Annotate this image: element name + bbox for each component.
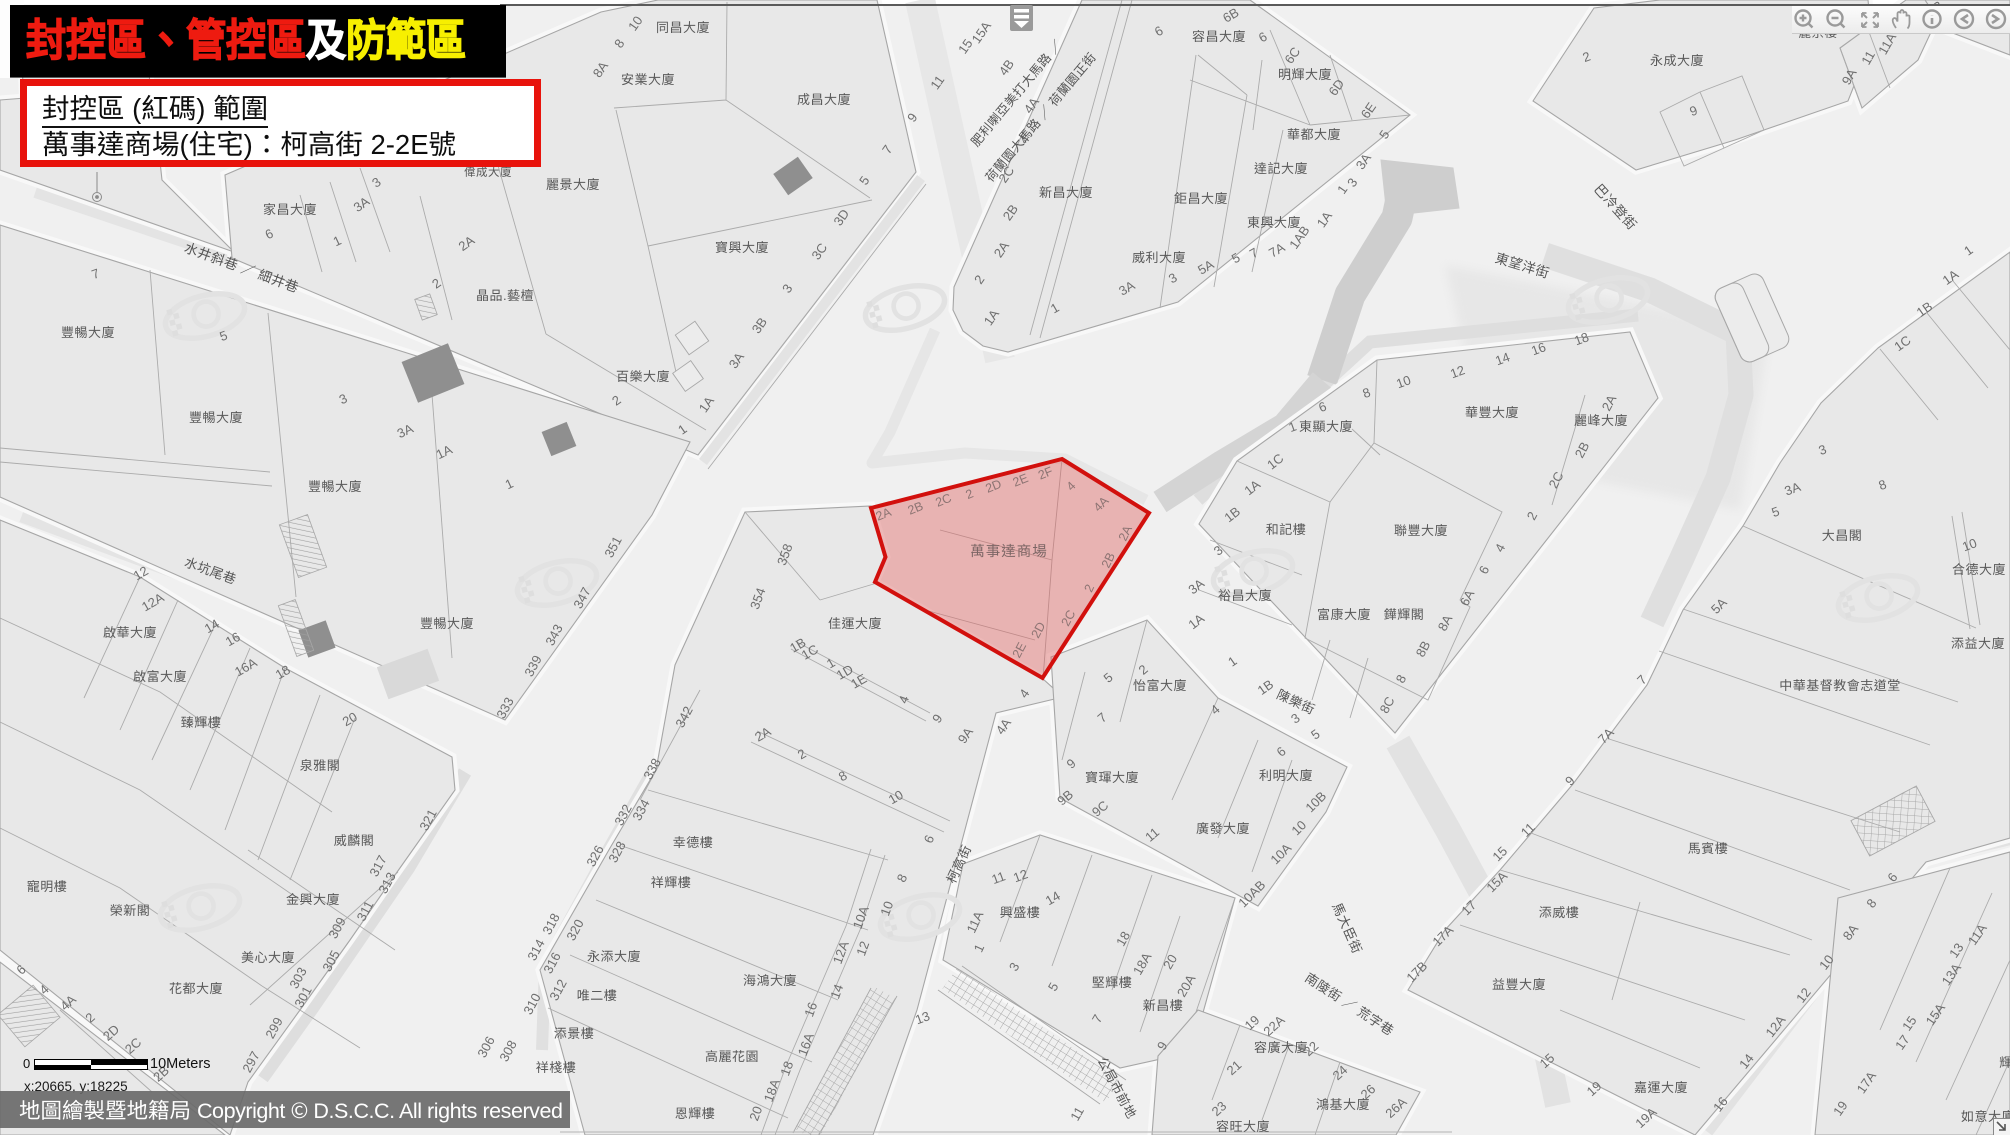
svg-text:祥輝樓: 祥輝樓 — [651, 872, 692, 891]
svg-text:興盛樓: 興盛樓 — [1000, 902, 1041, 921]
svg-text:威麟閣: 威麟閣 — [334, 830, 375, 849]
svg-text:豐暢大廈: 豐暢大廈 — [189, 407, 243, 426]
svg-text:同昌大廈: 同昌大廈 — [656, 17, 710, 36]
svg-text:百樂大廈: 百樂大廈 — [616, 366, 670, 385]
svg-text:啟華大廈: 啟華大廈 — [103, 622, 157, 641]
svg-text:寶興大廈: 寶興大廈 — [715, 237, 769, 256]
svg-text:晶品.藝檀: 晶品.藝檀 — [476, 285, 534, 304]
svg-text:臻輝樓: 臻輝樓 — [181, 712, 222, 731]
svg-text:合德大廈: 合德大廈 — [1952, 559, 2006, 578]
svg-text:萬事達商場: 萬事達商場 — [970, 540, 1048, 561]
svg-text:麗景大廈: 麗景大廈 — [546, 174, 600, 193]
svg-text:鉅昌大廈: 鉅昌大廈 — [1174, 188, 1228, 207]
svg-text:新昌樓: 新昌樓 — [1143, 995, 1184, 1014]
svg-text:堅輝樓: 堅輝樓 — [1092, 972, 1133, 991]
svg-text:泉雅閣: 泉雅閣 — [300, 755, 341, 774]
svg-text:安業大廈: 安業大廈 — [621, 69, 675, 88]
svg-text:永添大廈: 永添大廈 — [587, 946, 641, 965]
svg-text:威利大廈: 威利大廈 — [1132, 247, 1186, 266]
svg-text:聯豐大廈: 聯豐大廈 — [1394, 520, 1448, 539]
svg-text:利明大廈: 利明大廈 — [1259, 765, 1313, 784]
svg-text:幸德樓: 幸德樓 — [673, 832, 714, 851]
svg-text:華豐大廈: 華豐大廈 — [1465, 402, 1519, 421]
svg-text:添景樓: 添景樓 — [554, 1023, 595, 1042]
svg-text:輝: 輝 — [1999, 1052, 2010, 1071]
svg-text:家昌大廈: 家昌大廈 — [263, 199, 317, 218]
svg-text:唯二樓: 唯二樓 — [577, 985, 618, 1004]
svg-text:富康大廈: 富康大廈 — [1317, 604, 1371, 623]
svg-text:豐暢大廈: 豐暢大廈 — [61, 322, 115, 341]
svg-text:明輝大廈: 明輝大廈 — [1278, 64, 1332, 83]
svg-text:海鴻大廈: 海鴻大廈 — [743, 970, 797, 989]
svg-text:東顯大廈: 東顯大廈 — [1299, 416, 1353, 435]
svg-text:新昌大廈: 新昌大廈 — [1039, 182, 1093, 201]
svg-text:廣發大廈: 廣發大廈 — [1196, 818, 1250, 837]
svg-text:榮新閣: 榮新閣 — [110, 900, 151, 919]
svg-text:麗峰大廈: 麗峰大廈 — [1574, 410, 1628, 429]
svg-text:寶琿大廈: 寶琿大廈 — [1085, 767, 1139, 786]
svg-text:裕昌大廈: 裕昌大廈 — [1218, 585, 1272, 604]
svg-text:金興大廈: 金興大廈 — [286, 889, 340, 908]
svg-text:鏵輝閣: 鏵輝閣 — [1384, 604, 1425, 623]
svg-text:祥棧樓: 祥棧樓 — [536, 1057, 577, 1076]
svg-text:益豐大廈: 益豐大廈 — [1492, 974, 1546, 993]
svg-text:和記樓: 和記樓 — [1266, 519, 1307, 538]
svg-text:容旺大廈: 容旺大廈 — [1216, 1116, 1270, 1135]
svg-text:馬賓樓: 馬賓樓 — [1688, 838, 1729, 857]
svg-text:怡富大廈: 怡富大廈 — [1133, 675, 1187, 694]
svg-text:豐暢大廈: 豐暢大廈 — [308, 476, 362, 495]
svg-text:恩輝樓: 恩輝樓 — [675, 1103, 716, 1122]
svg-text:美心大廈: 美心大廈 — [241, 947, 295, 966]
svg-text:寵明樓: 寵明樓 — [27, 876, 68, 895]
svg-text:添威樓: 添威樓 — [1539, 902, 1580, 921]
svg-text:嘉運大廈: 嘉運大廈 — [1634, 1077, 1688, 1096]
svg-text:華都大廈: 華都大廈 — [1287, 124, 1341, 143]
svg-text:大昌閣: 大昌閣 — [1822, 525, 1863, 544]
svg-text:成昌大廈: 成昌大廈 — [797, 89, 851, 108]
svg-text:花都大廈: 花都大廈 — [169, 978, 223, 997]
svg-text:豐暢大廈: 豐暢大廈 — [420, 613, 474, 632]
svg-text:高麗花園: 高麗花園 — [705, 1046, 759, 1065]
svg-text:佳運大廈: 佳運大廈 — [828, 613, 882, 632]
svg-text:添益大廈: 添益大廈 — [1951, 633, 2005, 652]
svg-text:容昌大廈: 容昌大廈 — [1192, 26, 1246, 45]
svg-text:達記大廈: 達記大廈 — [1254, 158, 1308, 177]
svg-text:永成大廈: 永成大廈 — [1650, 50, 1704, 69]
svg-text:中華基督教會志道堂: 中華基督教會志道堂 — [1779, 675, 1901, 694]
svg-text:啟富大廈: 啟富大廈 — [133, 666, 187, 685]
